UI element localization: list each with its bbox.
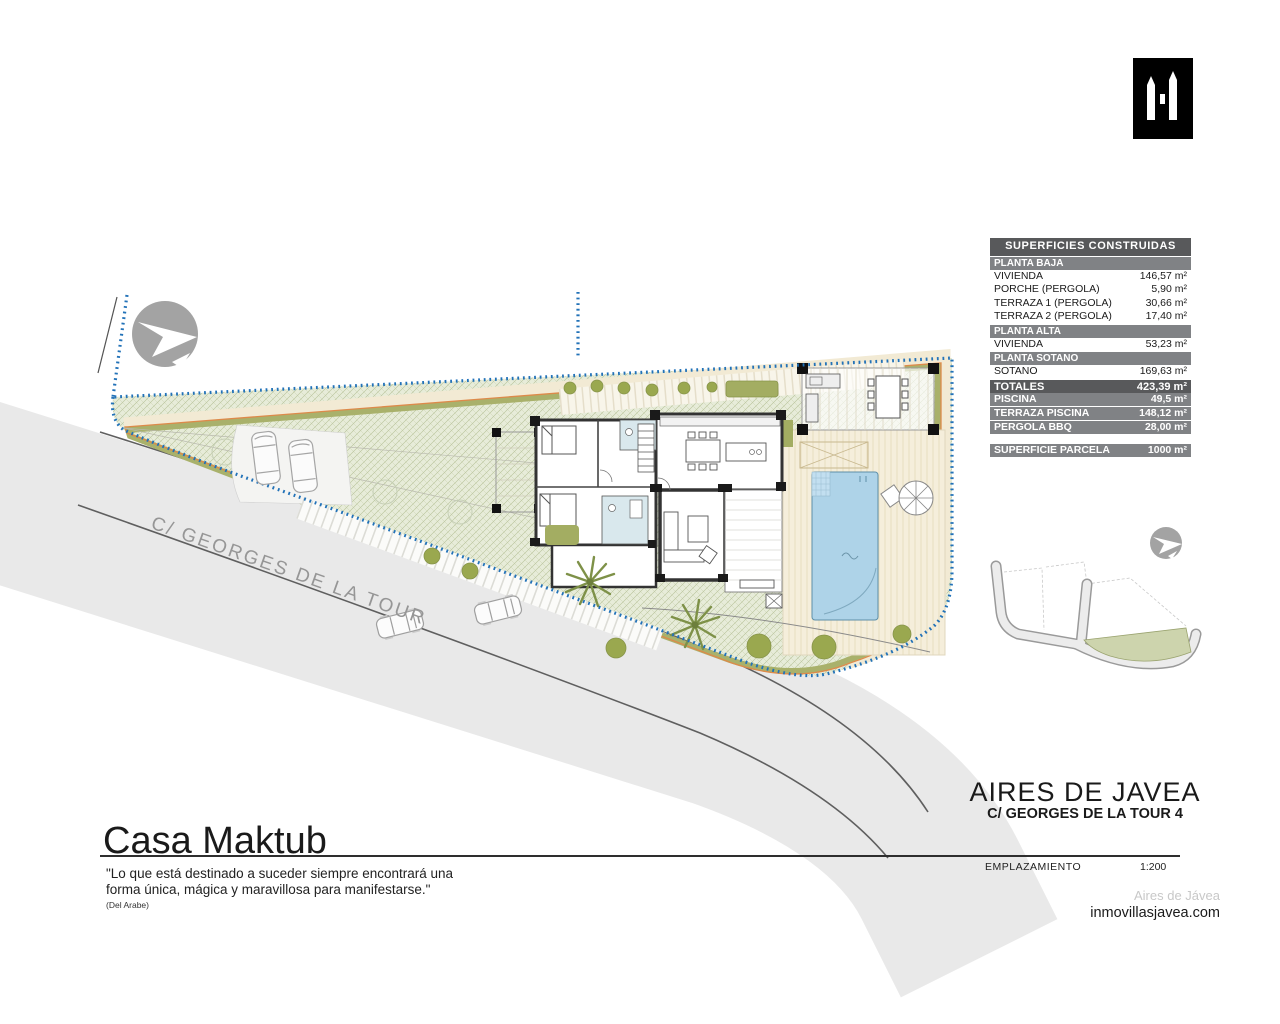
parcela-table: SUPERFICIE PARCELA 1000 m²: [990, 443, 1191, 457]
planter-hedge: [545, 525, 579, 545]
bbq-counter: [806, 374, 840, 388]
row-value: 30,66 m²: [1146, 297, 1187, 311]
steps-terrace: [725, 490, 782, 608]
boundary-spur: [113, 295, 127, 397]
table-row: PORCHE (PERGOLA)5,90 m²: [990, 283, 1191, 297]
sheet-label: EMPLAZAMIENTO: [985, 861, 1081, 873]
kitchen-counter: [660, 417, 780, 426]
row-label: PORCHE (PERGOLA): [994, 283, 1100, 297]
quote-source: (Del Arabe): [106, 900, 149, 910]
table-section-header: PLANTA ALTA: [990, 325, 1191, 338]
table-section-header: PLANTA SOTANO: [990, 352, 1191, 365]
north-arrow-icon-small: [1150, 527, 1182, 559]
staircase: [638, 424, 654, 472]
row-label: TERRAZA 2 (PERGOLA): [994, 310, 1112, 324]
row-value: 53,23 m²: [1146, 338, 1187, 352]
row-value: 5,90 m²: [1151, 283, 1187, 297]
superficies-table-title: SUPERFICIES CONSTRUIDAS: [990, 238, 1191, 256]
table-row: PISCINA49,5 m²: [990, 393, 1191, 406]
row-label: TERRAZA PISCINA: [994, 407, 1089, 420]
pool: [812, 472, 878, 620]
row-value: 148,12 m²: [1139, 407, 1187, 420]
row-label: SOTANO: [994, 365, 1038, 379]
table-row: TERRAZA PISCINA148,12 m²: [990, 407, 1191, 420]
bench: [740, 580, 774, 588]
dining-table: [686, 432, 720, 470]
row-value: 17,40 m²: [1146, 310, 1187, 324]
scale-label: 1:200: [1140, 861, 1166, 873]
road-edge-line: [98, 297, 117, 373]
project-quote: "Lo que está destinado a suceder siempre…: [106, 866, 454, 898]
table-row: VIVIENDA146,57 m²: [990, 270, 1191, 284]
table-row: PERGOLA BBQ28,00 m²: [990, 421, 1191, 434]
table-row: TERRAZA 2 (PERGOLA)17,40 m²: [990, 310, 1191, 324]
drawing-sheet: C/ GEORGES DE LA TOUR: [0, 0, 1280, 1024]
row-value: 169,63 m²: [1140, 365, 1187, 379]
project-title: Casa Maktub: [103, 820, 327, 863]
minimap-plot-lines: [1004, 562, 1186, 630]
location-minimap: [996, 562, 1196, 664]
row-label: PISCINA: [994, 393, 1037, 406]
row-label: VIVIENDA: [994, 338, 1043, 352]
row-value: 49,5 m²: [1151, 393, 1187, 406]
bbq-pergola: [797, 363, 939, 435]
website-link[interactable]: inmovillasjavea.com: [960, 905, 1220, 921]
location-subtitle: C/ GEORGES DE LA TOUR 4: [955, 806, 1215, 822]
location-title: AIRES DE JAVEA: [955, 777, 1215, 808]
planter: [783, 420, 793, 447]
table-section-header: PLANTA BAJA: [990, 257, 1191, 270]
row-value: 146,57 m²: [1140, 270, 1187, 284]
kitchen-island: [726, 443, 766, 461]
row-label: TERRAZA 1 (PERGOLA): [994, 297, 1112, 311]
table-row: SOTANO169,63 m²: [990, 365, 1191, 379]
superficies-table: SUPERFICIES CONSTRUIDAS PLANTA BAJAVIVIE…: [990, 238, 1191, 395]
row-label: VIVIENDA: [994, 270, 1043, 284]
parcela-row: SUPERFICIE PARCELA 1000 m²: [990, 444, 1191, 457]
row-label: PERGOLA BBQ: [994, 421, 1072, 434]
row-value: 28,00 m²: [1145, 421, 1187, 434]
logo-glyph: [1133, 58, 1193, 139]
table-row: VIVIENDA53,23 m²: [990, 338, 1191, 352]
watermark: Aires de Jávea: [960, 888, 1220, 903]
inmo-villas-logo: [1133, 58, 1193, 139]
north-arrow-icon: [132, 301, 198, 368]
table-row: TERRAZA 1 (PERGOLA)30,66 m²: [990, 297, 1191, 311]
exterior-table: PISCINA49,5 m²TERRAZA PISCINA148,12 m²PE…: [990, 392, 1191, 434]
